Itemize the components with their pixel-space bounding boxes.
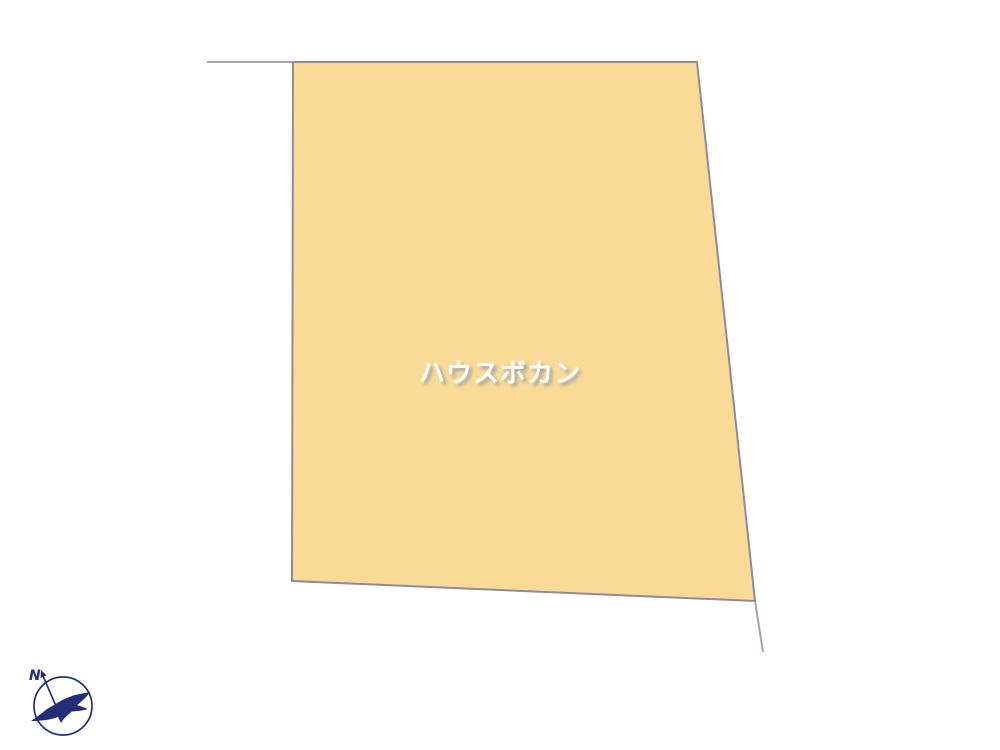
north-label: N (29, 668, 41, 684)
boundary-extension-bottom-right-line (755, 601, 763, 652)
bird-icon (31, 692, 90, 723)
lot-polygon (292, 62, 755, 601)
compass-north-indicator: N (28, 666, 98, 742)
compass-icon: N (28, 666, 98, 742)
lot-plan-drawing (0, 0, 1000, 750)
lot-plan-canvas: ハウスボカン N (0, 0, 1000, 750)
